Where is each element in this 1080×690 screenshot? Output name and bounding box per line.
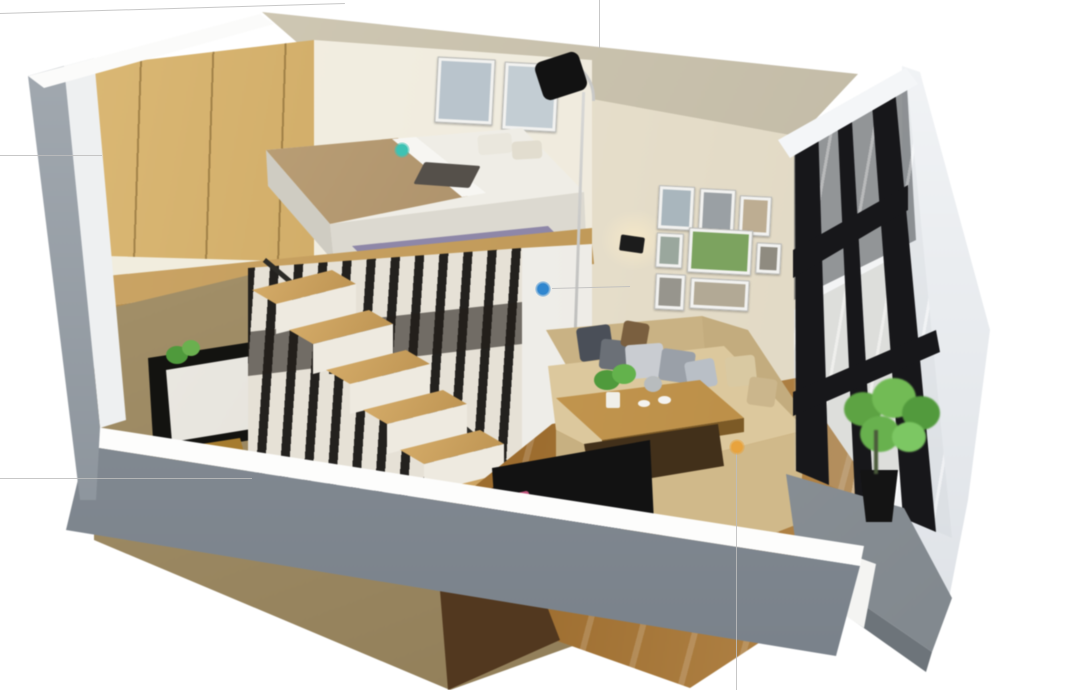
- room-cutaway: [0, 0, 1080, 690]
- apartment-3d-render: [0, 0, 1080, 690]
- under-loft-storage-hotspot[interactable]: [535, 281, 551, 297]
- plant-trunk: [874, 430, 878, 474]
- living-room-hotspot[interactable]: [729, 439, 745, 455]
- left-lower-line: [0, 478, 252, 479]
- orange-hotspot-line: [736, 452, 737, 690]
- plant-foliage: [892, 422, 926, 452]
- left-upper-line: [0, 155, 102, 156]
- loft-bedroom-hotspot[interactable]: [394, 142, 410, 158]
- top-center-vertical-line: [599, 0, 600, 48]
